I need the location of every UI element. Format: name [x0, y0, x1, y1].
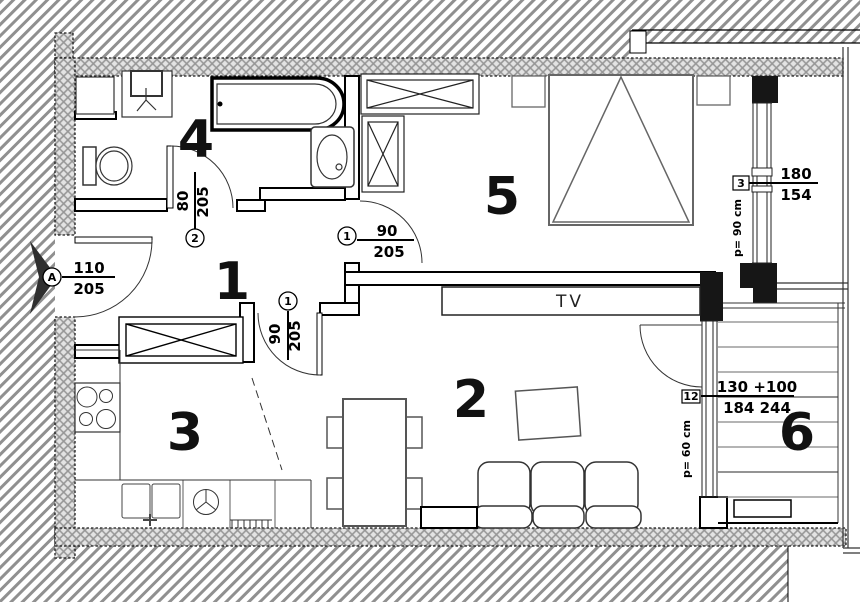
- room-number-bathroom: 4: [178, 110, 214, 170]
- side-table: [421, 507, 477, 528]
- wall-left-lower: [55, 317, 75, 558]
- bathroom-furniture: [76, 71, 354, 187]
- wardrobe-horizontal: [361, 74, 479, 114]
- balcony-door-parapet: p= 60 cm: [680, 420, 693, 478]
- round-sink: [194, 490, 219, 515]
- bedroom-door-tag: 1: [343, 230, 351, 243]
- bathtub: [212, 78, 344, 130]
- nightstand-right: [697, 76, 730, 105]
- wall-left-upper: [55, 58, 75, 235]
- kitchen-sink: [122, 484, 180, 526]
- tv-label: TV: [555, 292, 584, 312]
- wardrobe-vertical: [362, 116, 404, 192]
- entrance-door-tag: A: [48, 271, 57, 284]
- pillar-balcony-top: [700, 272, 723, 321]
- dining-table: [343, 399, 406, 526]
- entrance-door-height: 205: [73, 280, 104, 298]
- bathroom-door-tag: 2: [191, 232, 199, 245]
- bedroom-window-width: 180: [780, 165, 811, 183]
- bedroom-door-label: 1 90 205: [338, 222, 414, 261]
- hall-closet: [119, 317, 243, 363]
- balcony-door-width: 130 +100: [717, 378, 797, 396]
- room-number-bedroom: 5: [484, 167, 520, 227]
- wall-top: [55, 58, 843, 76]
- solid-pillars: [700, 76, 778, 321]
- room-number-kitchen: 3: [167, 403, 203, 463]
- bed: [549, 75, 693, 225]
- shower-unit: [122, 71, 172, 117]
- bedroom-window-tag: 3: [737, 177, 745, 190]
- sofa: [474, 462, 641, 528]
- balcony-door-tag: 12: [683, 390, 698, 403]
- nightstand-left: [512, 76, 545, 107]
- wall-bedroom-living: [345, 272, 715, 285]
- room-number-balcony: 6: [779, 403, 815, 463]
- washbasin: [311, 127, 354, 187]
- dishwasher-comb: [230, 520, 272, 528]
- neighbour-balcony-edges: [777, 47, 860, 553]
- bathroom-door-label: 80 205 2: [174, 172, 212, 247]
- wall-stub-top: [55, 33, 73, 58]
- wall-bottom: [55, 528, 846, 546]
- coffee-table: [515, 387, 580, 440]
- bedroom-window-label: 3 180 154 p= 90 cm: [731, 165, 818, 257]
- room-number-living: 2: [453, 370, 489, 430]
- stove: [75, 383, 120, 432]
- wall-notch: [630, 31, 646, 53]
- kitchen-living-divider: [252, 378, 282, 470]
- bedroom-window-parapet: p= 90 cm: [731, 199, 744, 257]
- balcony-bench: [734, 500, 791, 517]
- bedroom-door-width: 90: [377, 222, 398, 240]
- wall-living-top-right: [320, 303, 359, 315]
- bathroom-door-height: 205: [194, 186, 212, 217]
- living-room-furniture: TV: [327, 287, 700, 528]
- bedroom-window-height: 154: [780, 186, 811, 204]
- sofa-seat: [586, 506, 641, 528]
- living-door-tag: 1: [284, 295, 292, 308]
- wall-bath-bottom-left: [75, 199, 167, 211]
- sofa-seat: [533, 506, 584, 528]
- wall-bath-bottom-mid: [237, 200, 265, 211]
- dining-set: [327, 399, 422, 526]
- floor-plan: TV: [0, 0, 860, 602]
- living-door-label: 1 90 205: [266, 292, 304, 360]
- pillar-window-bottom: [740, 263, 777, 303]
- bedroom-door-height: 205: [373, 243, 404, 261]
- bath-cabinet: [76, 77, 114, 114]
- toilet: [83, 147, 132, 185]
- living-door-width: 90: [266, 324, 284, 345]
- sofa-seat: [474, 506, 532, 528]
- balcony-glazing: [700, 321, 718, 497]
- pillar-window-top: [752, 76, 778, 103]
- tv-cabinet: TV: [442, 287, 700, 315]
- room-number-hallway: 1: [214, 252, 250, 312]
- bedroom-furniture: [361, 74, 730, 225]
- entrance-door-width: 110: [73, 259, 104, 277]
- floor-plan-drawing: TV: [0, 0, 860, 602]
- bathroom-door-width: 80: [174, 191, 192, 212]
- wall-bath-bottom-right: [260, 188, 345, 200]
- balcony-door: [640, 325, 702, 387]
- wall-hall-kitchen: [75, 345, 120, 358]
- living-door-height: 205: [286, 320, 304, 351]
